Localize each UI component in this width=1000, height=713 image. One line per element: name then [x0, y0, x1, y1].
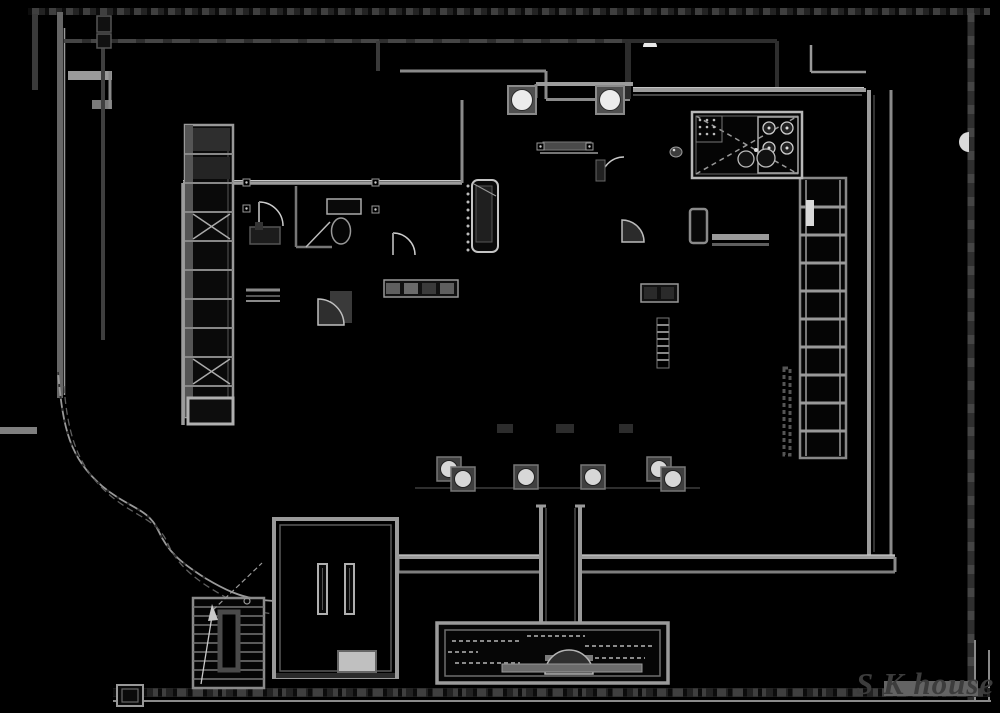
entrance-gate: [437, 623, 668, 683]
vanity: [250, 227, 280, 244]
column-footing: [581, 465, 605, 489]
kitchen-counter: [692, 112, 802, 178]
boundary-corner-box: [117, 685, 143, 706]
entry-mat: [338, 651, 376, 672]
stair-stringer: [220, 612, 238, 670]
column-footing: [596, 86, 624, 114]
logo: S K house: [856, 666, 994, 701]
gate-step: [502, 664, 642, 672]
column-footing: [508, 86, 536, 114]
counter: [712, 234, 769, 240]
floor-plan-canvas: S K house: [0, 0, 1000, 713]
column-footing: [514, 465, 538, 489]
floor-plan-drawing: S K house: [0, 0, 1000, 713]
dotted-edge: [467, 185, 470, 252]
tokonoma-alcove: [467, 180, 499, 252]
closet-corner-box: [188, 398, 233, 424]
column-footing: [451, 467, 475, 491]
background: [0, 0, 1000, 713]
low-cabinet: [384, 280, 458, 297]
logo-text: S K house: [856, 666, 994, 701]
plant-symbol: [670, 147, 682, 157]
fridge: [690, 209, 707, 243]
closet-row: [185, 125, 233, 424]
column-footing: [661, 467, 685, 491]
two-cell-cabinet: [641, 284, 678, 302]
